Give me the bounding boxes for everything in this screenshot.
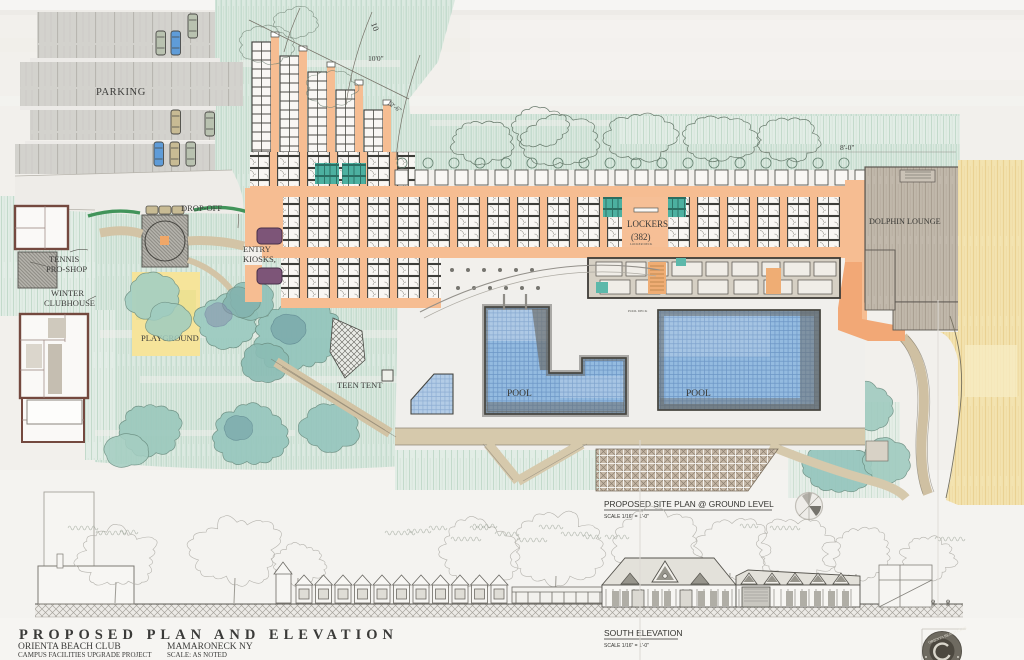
svg-text:PARKING: PARKING	[96, 87, 146, 98]
svg-text:WINTER: WINTER	[51, 288, 84, 298]
svg-text:SCALE 1/16" = 1'-0": SCALE 1/16" = 1'-0"	[604, 514, 649, 520]
svg-text:SOUTH ELEVATION: SOUTH ELEVATION	[604, 628, 683, 638]
svg-text:CAMPUS FACILITIES UPGRADE PROJ: CAMPUS FACILITIES UPGRADE PROJECT	[18, 651, 152, 659]
svg-text:LOCKER DECK: LOCKER DECK	[630, 242, 653, 246]
svg-text:CLUBHOUSE: CLUBHOUSE	[44, 298, 95, 308]
svg-text:(382): (382)	[631, 232, 651, 242]
svg-text:DOLPHIN LOUNGE: DOLPHIN LOUNGE	[869, 217, 941, 226]
svg-text:TEEN TENT: TEEN TENT	[337, 380, 383, 390]
svg-text:PROPOSED SITE PLAN @ GROUND: PROPOSED SITE PLAN @ GROUND LEVEL	[604, 499, 774, 509]
svg-text:PRO-SHOP: PRO-SHOP	[46, 264, 87, 274]
svg-text:LOCKERS: LOCKERS	[627, 219, 668, 229]
svg-text:SCALE 1/16" = 1'-0": SCALE 1/16" = 1'-0"	[604, 643, 649, 649]
svg-text:8'-0": 8'-0"	[840, 143, 854, 152]
svg-text:SCALE: AS NOTED: SCALE: AS NOTED	[167, 651, 227, 659]
svg-text:ENTRY: ENTRY	[243, 244, 271, 254]
svg-text:DROP-OFF: DROP-OFF	[181, 203, 222, 213]
svg-text:TENNIS: TENNIS	[49, 254, 79, 264]
svg-text:KIOSKS,: KIOSKS,	[243, 254, 276, 264]
svg-text:10'0": 10'0"	[368, 54, 384, 63]
svg-text:POOL: POOL	[507, 389, 532, 399]
svg-text:POOL: POOL	[686, 389, 711, 399]
svg-text:PROPOSED PLAN AND ELEVATION: PROPOSED PLAN AND ELEVATION	[19, 627, 398, 643]
svg-text:POOL DECK: POOL DECK	[628, 309, 648, 313]
